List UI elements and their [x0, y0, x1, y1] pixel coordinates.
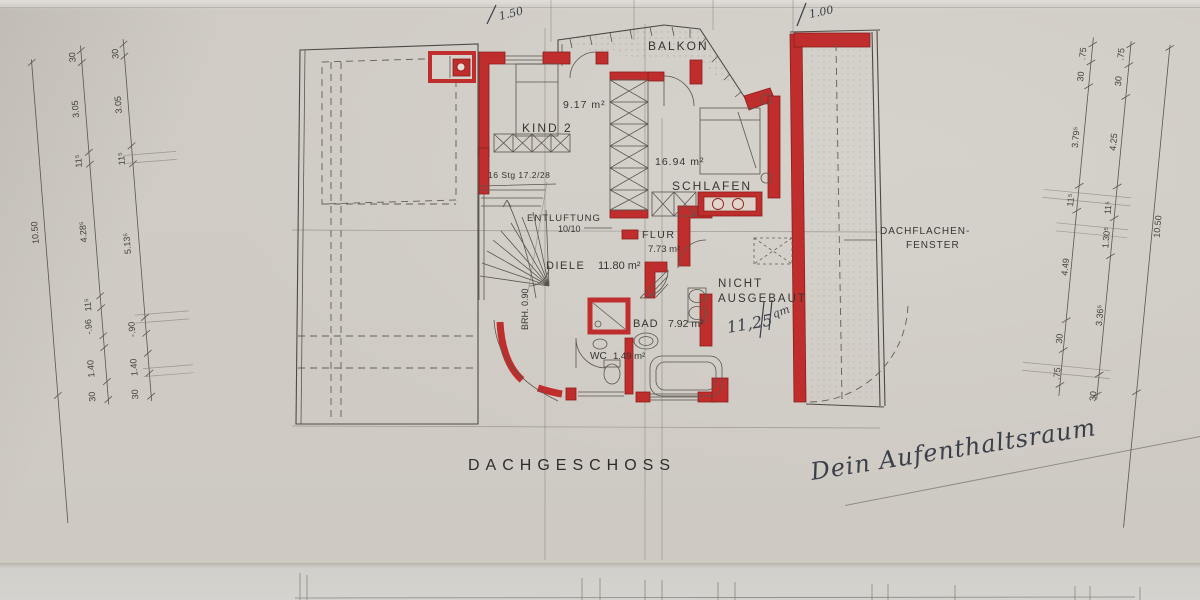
area-bad: 7.92 m²: [668, 318, 704, 330]
dim: 30: [130, 389, 141, 400]
dim: 30: [1113, 76, 1124, 87]
dim: 1.30⁵: [1100, 226, 1112, 248]
dim: 3.79⁵: [1070, 126, 1082, 148]
dim: 1.40: [128, 358, 139, 376]
right-dimensions: .75 30 3.79⁵ 11⁵ 4.49 30 .75 .75 30 4.25…: [1008, 34, 1180, 529]
dim: 5.13⁵: [121, 232, 133, 254]
entlueftung-label: ENTLUFTUNG: [527, 213, 601, 224]
room-label-schlafen: SCHLAFEN: [672, 179, 752, 193]
handwriting-top-right: 1.00: [808, 3, 835, 21]
staircase: 16 Stg 17.2/28: [480, 170, 550, 298]
dim: 30: [67, 52, 78, 63]
left-dimensions: 10.50 30 3.05 11⁵ 4.28⁵ 11⁵ -.96 1.40 30…: [15, 36, 204, 524]
room-label-wc: WC: [590, 351, 607, 362]
dim: 4.28⁵: [77, 221, 89, 243]
dim: 30: [1054, 333, 1065, 344]
next-sheet-edge: [295, 573, 1140, 600]
room-label-kind2: KIND 2: [522, 121, 573, 135]
left-attic-area: [296, 44, 478, 424]
toilet: [604, 360, 620, 384]
dim: 3.05: [113, 96, 124, 114]
right-roof-strip: [790, 30, 908, 407]
dim: 11⁵: [1103, 200, 1114, 214]
dim: -.96: [83, 319, 94, 335]
dim-left-total: 10.50: [29, 221, 41, 244]
room-label-nicht: NICHT: [718, 278, 763, 290]
room-label-bad: BAD: [633, 318, 659, 330]
stair-note: 16 Stg 17.2/28: [488, 170, 550, 180]
dim: 30: [1088, 391, 1099, 402]
shower: [590, 300, 628, 332]
dim: 11⁵: [116, 152, 127, 166]
area-diele: 11.80 m²: [598, 260, 641, 272]
dim: .75: [1115, 48, 1126, 61]
dim: 1.40: [85, 360, 96, 378]
entlueftung-size: 10/10: [558, 224, 581, 234]
wc-basin: [593, 339, 607, 349]
bathtub: [650, 356, 722, 396]
brh-note: BRH. 0.90: [520, 288, 530, 330]
roof-window-label-1: DACHFLACHEN-: [880, 226, 970, 237]
handwriting-area-value: 11,25: [725, 310, 773, 337]
room-label-ausgebaut: AUSGEBAUT: [718, 293, 807, 305]
roof-window-label-2: FENSTER: [906, 240, 960, 251]
bad-sink: [634, 333, 658, 349]
balcony: BALKON: [558, 25, 747, 101]
floor-plan-photo: BALKON: [0, 0, 1200, 600]
dim: 4.25: [1108, 133, 1120, 151]
dim: 3.05: [70, 100, 81, 118]
dim: 3.36⁵: [1094, 304, 1106, 326]
dim: 30: [87, 391, 98, 402]
area-kind2: 9.17 m²: [563, 99, 606, 111]
dim: -.90: [126, 321, 137, 337]
chimney-dashed-box: [754, 238, 792, 264]
handwriting-bottom-note: Dein Aufenthaltsraum: [808, 413, 1098, 486]
area-wc: 1.49 m²: [613, 351, 645, 362]
handwriting-area-unit: qm: [771, 303, 792, 321]
handwriting-top-left: 1.50: [498, 4, 525, 23]
dim: 11⁵: [73, 154, 84, 168]
plan-title: DACHGESCHOSS: [468, 457, 676, 474]
dim: .75: [1077, 47, 1088, 60]
room-label-diele: DIELE: [546, 260, 585, 272]
dim: 4.49: [1059, 258, 1071, 276]
area-schlafen: 16.94 m²: [655, 156, 704, 168]
bed-schlafen: [700, 108, 760, 174]
dim: 30: [1075, 71, 1086, 82]
plan-drawing: BALKON: [0, 0, 1200, 600]
dim: 30: [110, 48, 121, 59]
room-label-flur: FLUR: [642, 229, 675, 241]
dim: 11⁵: [82, 298, 93, 312]
dim-right-total: 10.50: [1151, 215, 1163, 238]
annotations: ENTLUFTUNG 10/10 BRH. 0.90 DACHFLACHEN- …: [468, 213, 970, 474]
room-label-balkon: BALKON: [648, 39, 709, 53]
area-flur: 7.73 m²: [648, 244, 680, 255]
